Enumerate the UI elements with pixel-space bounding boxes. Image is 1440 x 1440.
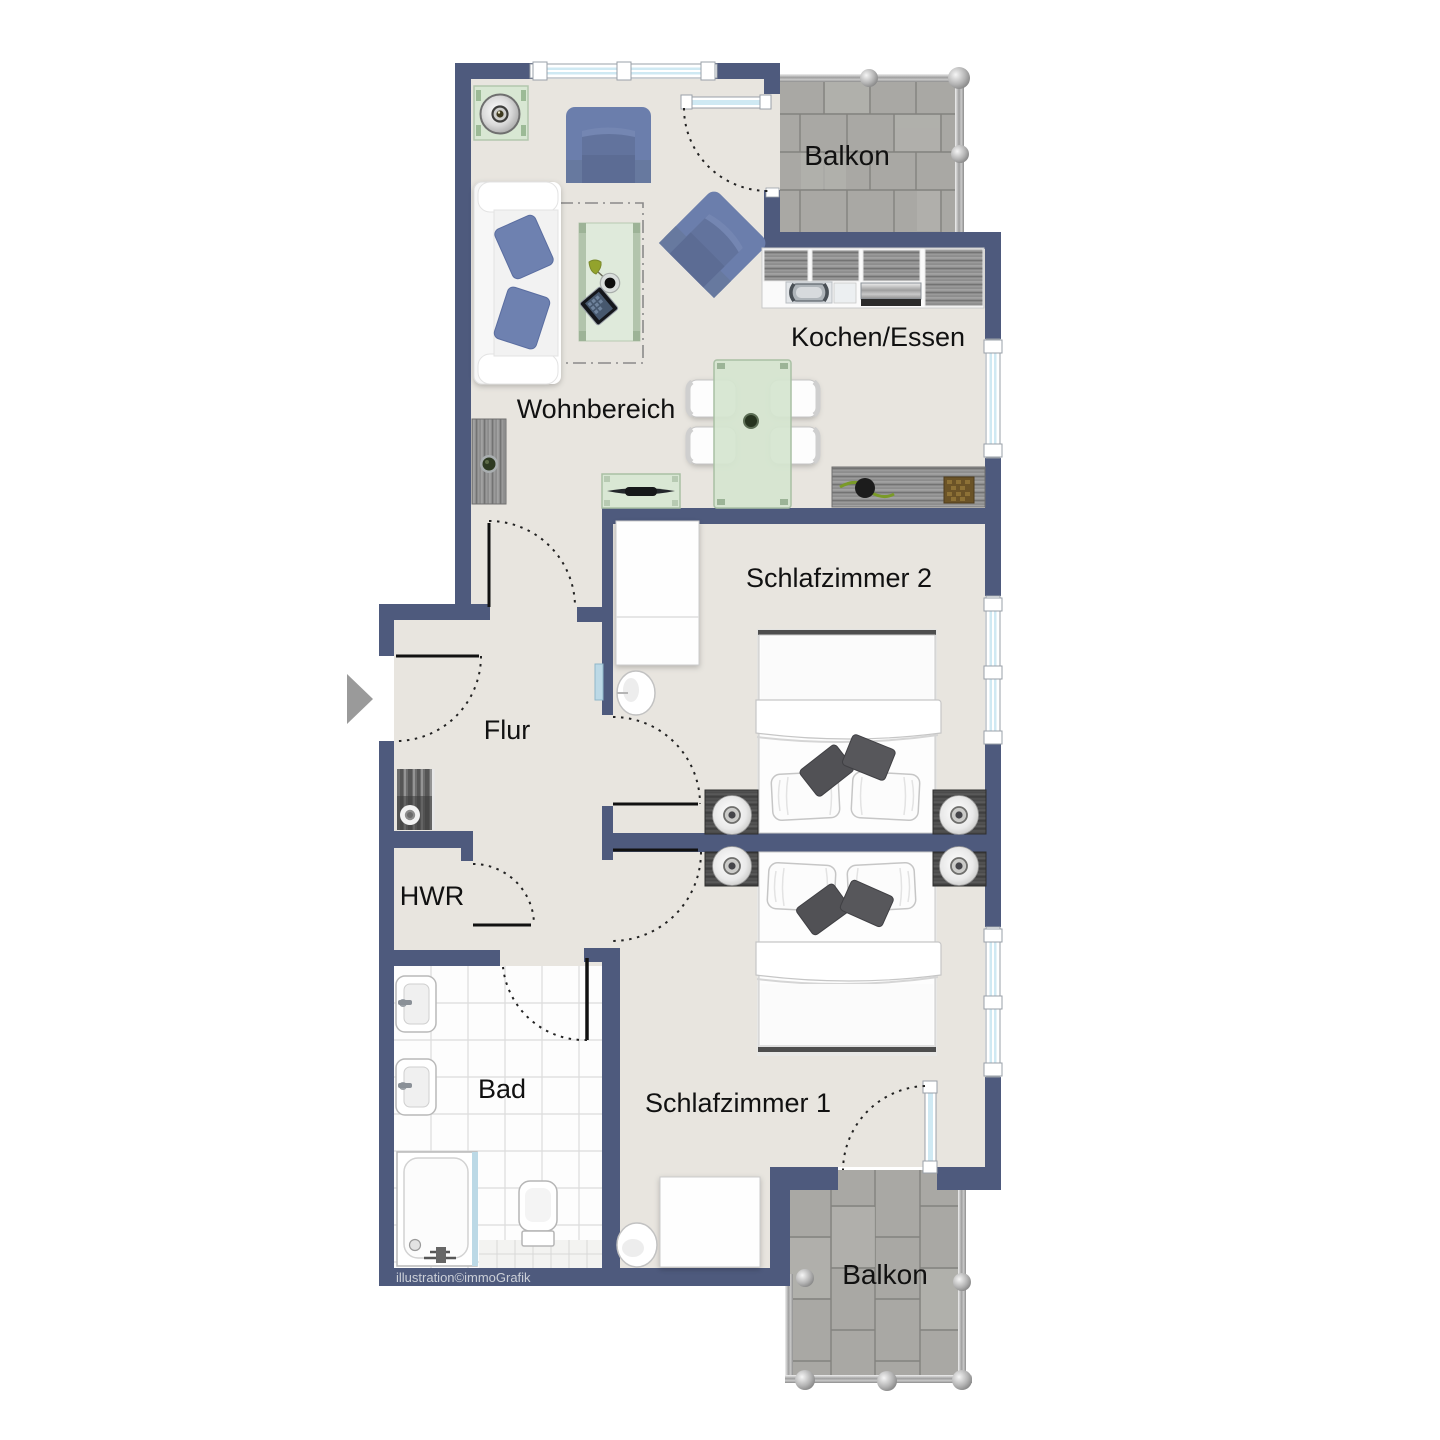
svg-text:illustration©immoGrafik: illustration©immoGrafik bbox=[396, 1270, 531, 1285]
svg-text:Balkon: Balkon bbox=[842, 1259, 928, 1290]
svg-text:Balkon: Balkon bbox=[804, 140, 890, 171]
svg-text:Kochen/Essen: Kochen/Essen bbox=[791, 322, 965, 352]
svg-text:HWR: HWR bbox=[400, 881, 464, 911]
svg-text:Schlafzimmer 1: Schlafzimmer 1 bbox=[645, 1088, 831, 1118]
svg-text:Wohnbereich: Wohnbereich bbox=[517, 394, 676, 424]
svg-text:Flur: Flur bbox=[484, 715, 531, 745]
svg-text:Schlafzimmer 2: Schlafzimmer 2 bbox=[746, 563, 932, 593]
svg-text:Bad: Bad bbox=[478, 1074, 526, 1104]
